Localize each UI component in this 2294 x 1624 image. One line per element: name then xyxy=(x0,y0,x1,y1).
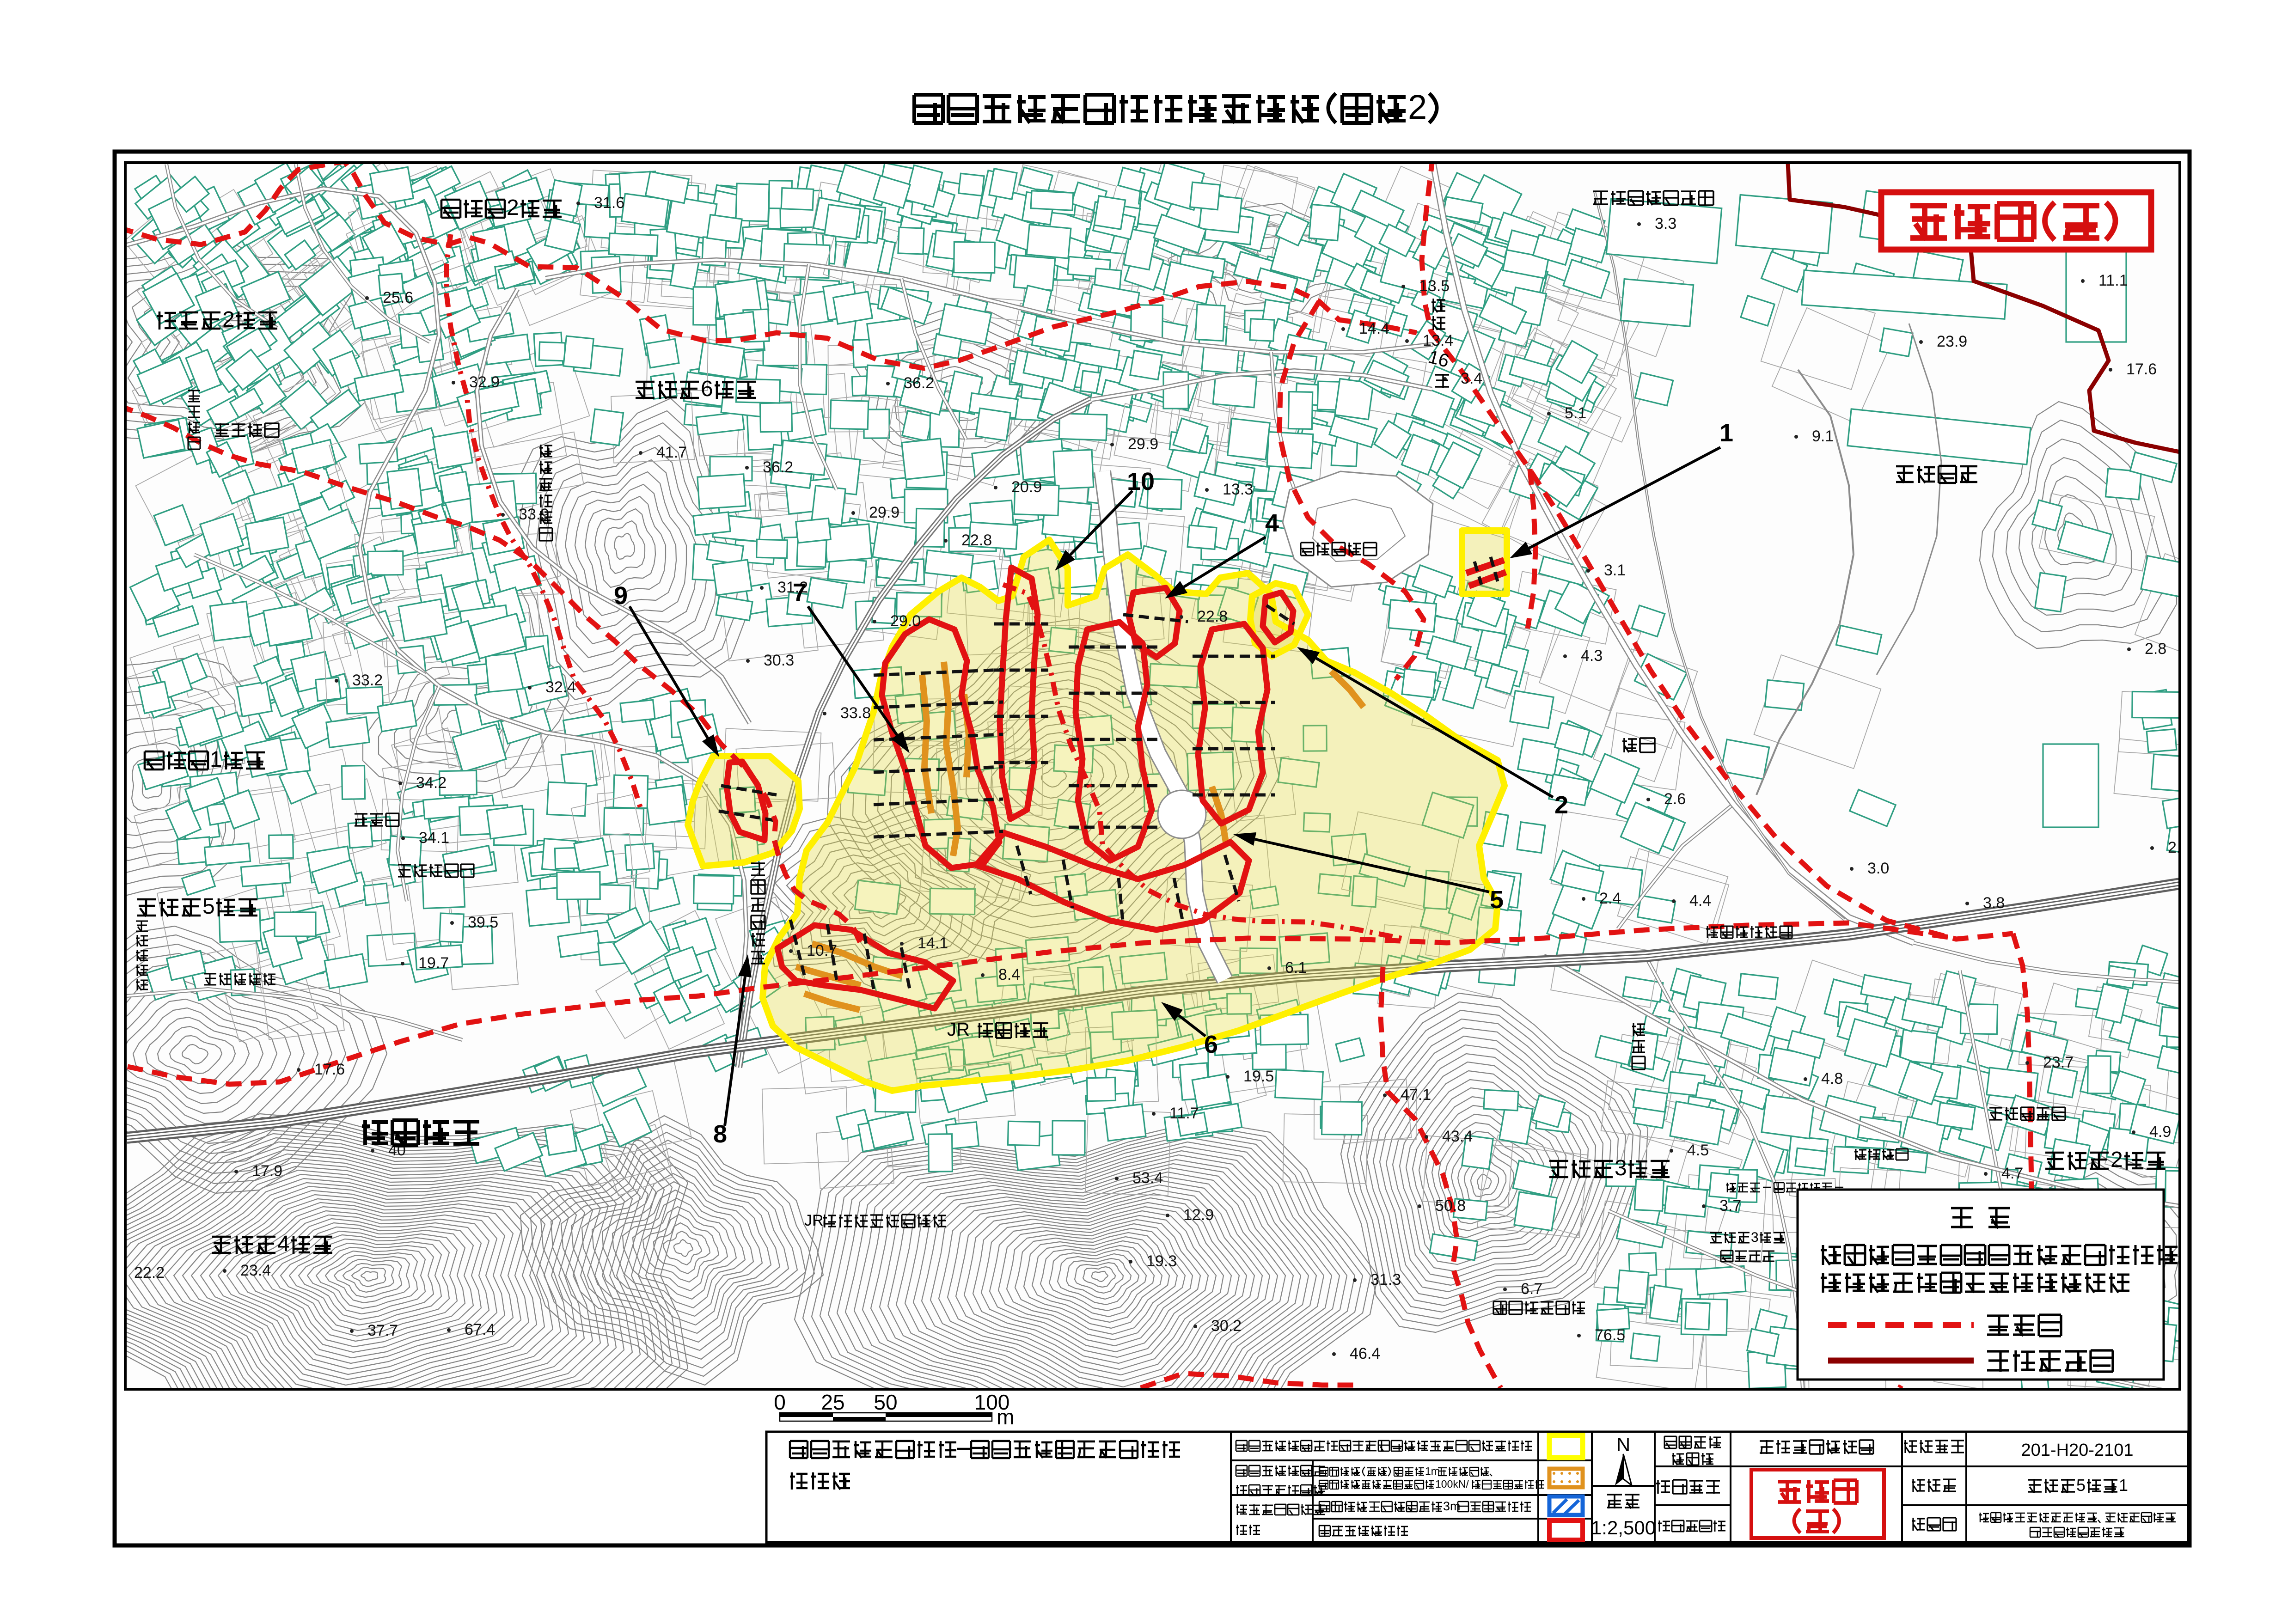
svg-text:4.9: 4.9 xyxy=(2149,1123,2171,1141)
svg-text:39.5: 39.5 xyxy=(468,914,498,931)
svg-text:3.4: 3.4 xyxy=(1461,370,1482,387)
svg-text:53.4: 53.4 xyxy=(1132,1169,1163,1187)
svg-text:43.4: 43.4 xyxy=(1442,1128,1473,1145)
svg-text:5: 5 xyxy=(1490,886,1504,914)
svg-text:m: m xyxy=(997,1405,1014,1429)
svg-text:9: 9 xyxy=(614,582,628,610)
svg-text:30.3: 30.3 xyxy=(764,652,794,669)
svg-text:JR: JR xyxy=(804,1212,824,1229)
svg-text:14.4: 14.4 xyxy=(1359,320,1389,337)
svg-text:22.8: 22.8 xyxy=(1197,608,1228,625)
svg-text:2: 2 xyxy=(1408,88,1427,126)
svg-text:3.3: 3.3 xyxy=(1655,215,1676,232)
svg-text:4.7: 4.7 xyxy=(2001,1165,2023,1182)
svg-text:34.2: 34.2 xyxy=(416,774,447,792)
svg-text:12.9: 12.9 xyxy=(1183,1206,1214,1224)
svg-text:JR: JR xyxy=(947,1020,970,1040)
svg-text:2: 2 xyxy=(507,195,519,220)
svg-text:3.1: 3.1 xyxy=(1604,562,1626,579)
svg-text:20.9: 20.9 xyxy=(1011,478,1042,496)
svg-text:23.9: 23.9 xyxy=(1937,333,1967,350)
svg-text:11.7: 11.7 xyxy=(1169,1105,1199,1122)
svg-text:25: 25 xyxy=(821,1390,844,1414)
svg-text:22.8: 22.8 xyxy=(961,531,992,549)
svg-text:50: 50 xyxy=(874,1390,897,1414)
svg-text:4.5: 4.5 xyxy=(1687,1142,1709,1159)
svg-text:33.8: 33.8 xyxy=(840,704,871,722)
svg-text:31.3: 31.3 xyxy=(1370,1271,1401,1288)
svg-text:4: 4 xyxy=(1265,509,1279,537)
svg-text:2: 2 xyxy=(222,307,235,332)
svg-text:32.4: 32.4 xyxy=(545,678,576,696)
svg-text:76.5: 76.5 xyxy=(1595,1326,1625,1344)
svg-text:3: 3 xyxy=(1615,1156,1627,1180)
svg-text:17.6: 17.6 xyxy=(314,1061,345,1078)
svg-text:46.4: 46.4 xyxy=(1350,1345,1380,1362)
svg-text:30.2: 30.2 xyxy=(1211,1317,1242,1335)
svg-text:10: 10 xyxy=(1127,468,1155,495)
svg-text:1: 1 xyxy=(1719,419,1733,447)
svg-text:32.9: 32.9 xyxy=(469,373,500,391)
svg-text:23.7: 23.7 xyxy=(2043,1054,2074,1071)
svg-text:36.2: 36.2 xyxy=(904,374,934,392)
svg-text:3.0: 3.0 xyxy=(1867,860,1889,877)
svg-text:7: 7 xyxy=(793,579,807,606)
svg-text:67.4: 67.4 xyxy=(465,1321,495,1338)
svg-text:1: 1 xyxy=(210,747,222,772)
svg-text:10.7: 10.7 xyxy=(807,942,837,959)
svg-text:19.7: 19.7 xyxy=(418,954,449,972)
svg-text:8: 8 xyxy=(713,1120,727,1148)
svg-text:4.4: 4.4 xyxy=(1689,892,1711,910)
svg-text:25.6: 25.6 xyxy=(383,289,413,306)
svg-text:31.6: 31.6 xyxy=(594,194,624,212)
svg-text:100kN/: 100kN/ xyxy=(1435,1478,1469,1490)
svg-text:3.7: 3.7 xyxy=(1719,1197,1741,1215)
svg-text:5: 5 xyxy=(202,894,215,919)
svg-text:13.4: 13.4 xyxy=(1423,332,1453,349)
svg-text:6: 6 xyxy=(701,377,713,401)
svg-text:36.2: 36.2 xyxy=(763,458,793,476)
svg-text:4: 4 xyxy=(277,1232,290,1256)
svg-text:6.7: 6.7 xyxy=(1521,1280,1542,1298)
svg-text:2.8: 2.8 xyxy=(2145,640,2166,658)
svg-text:1:2,500: 1:2,500 xyxy=(1591,1517,1656,1539)
svg-text:8.4: 8.4 xyxy=(998,966,1020,983)
svg-text:4.8: 4.8 xyxy=(1821,1070,1843,1087)
svg-text:23.4: 23.4 xyxy=(240,1262,271,1279)
svg-text:5: 5 xyxy=(2076,1476,2086,1495)
svg-text:0: 0 xyxy=(774,1390,786,1414)
svg-text:33.2: 33.2 xyxy=(352,672,383,689)
svg-text:9.1: 9.1 xyxy=(1812,427,1834,445)
svg-text:1: 1 xyxy=(2119,1476,2128,1495)
svg-text:47.1: 47.1 xyxy=(1401,1086,1431,1104)
svg-text:14.1: 14.1 xyxy=(918,934,948,952)
svg-text:29.9: 29.9 xyxy=(869,504,899,521)
svg-text:37.7: 37.7 xyxy=(367,1322,398,1339)
svg-text:11.1: 11.1 xyxy=(2098,272,2128,289)
svg-text:17.6: 17.6 xyxy=(2126,360,2157,378)
svg-text:29.9: 29.9 xyxy=(1128,435,1158,453)
svg-text:34.1: 34.1 xyxy=(419,829,449,847)
svg-text:22.2: 22.2 xyxy=(134,1264,165,1282)
svg-text:2.6: 2.6 xyxy=(1664,790,1686,808)
svg-text:19.3: 19.3 xyxy=(1146,1252,1177,1270)
svg-text:3: 3 xyxy=(1751,1230,1759,1245)
svg-text:13.3: 13.3 xyxy=(1223,481,1253,498)
svg-text:1m: 1m xyxy=(1425,1465,1440,1477)
svg-text:6: 6 xyxy=(1204,1031,1218,1058)
svg-text:201-H20-2101: 201-H20-2101 xyxy=(2021,1441,2134,1460)
svg-text:6.1: 6.1 xyxy=(1285,959,1307,977)
svg-text:2.4: 2.4 xyxy=(1599,890,1621,907)
svg-text:5.1: 5.1 xyxy=(1565,404,1586,422)
svg-text:3.8: 3.8 xyxy=(1983,894,2005,912)
svg-text:2: 2 xyxy=(1554,791,1568,819)
svg-text:2: 2 xyxy=(2110,1148,2123,1172)
svg-text:13.5: 13.5 xyxy=(1419,277,1450,295)
svg-text:4.3: 4.3 xyxy=(1581,647,1603,665)
svg-text:17.9: 17.9 xyxy=(252,1162,282,1180)
svg-text:41.7: 41.7 xyxy=(656,444,687,461)
svg-text:19.5: 19.5 xyxy=(1243,1068,1274,1085)
svg-text:50.8: 50.8 xyxy=(1435,1197,1466,1215)
svg-text:N: N xyxy=(1616,1434,1630,1455)
svg-text:29.0: 29.0 xyxy=(890,612,921,630)
